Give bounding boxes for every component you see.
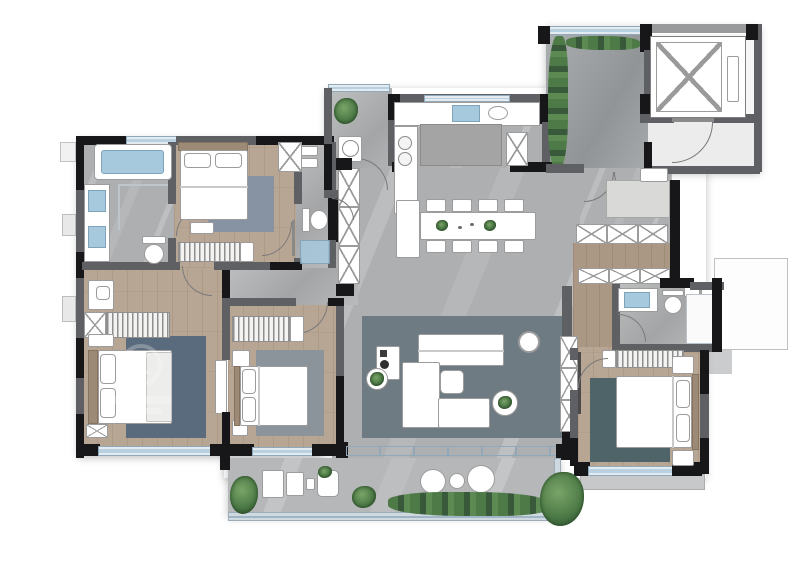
- shower-screen: [120, 184, 168, 186]
- round-chair: [420, 469, 446, 494]
- duvet-fold: [180, 186, 248, 188]
- wall-segment: [336, 284, 354, 296]
- wall-segment: [328, 298, 344, 306]
- door-leaf: [672, 118, 714, 122]
- door-panel: [215, 360, 227, 414]
- round-chair: [467, 465, 495, 493]
- nightstand: [86, 424, 108, 438]
- kitchen-island: [420, 124, 502, 166]
- wall-segment: [538, 26, 550, 44]
- pillow: [676, 414, 690, 442]
- wall-segment: [222, 444, 254, 456]
- lounge-chair: [262, 470, 284, 498]
- wall-segment: [570, 348, 578, 360]
- ac-ledge: [62, 214, 76, 236]
- watermark-glyph: [132, 354, 150, 374]
- pillow: [676, 380, 690, 408]
- wall-segment: [700, 394, 709, 440]
- round-table: [449, 473, 465, 489]
- desk-chair: [96, 286, 110, 300]
- window: [328, 84, 390, 92]
- dining-chair: [504, 240, 524, 253]
- sofa-cushion-line: [418, 350, 504, 352]
- wall-segment: [76, 338, 84, 380]
- elevator-counterweight: [727, 56, 739, 102]
- toilet-bowl: [664, 296, 682, 314]
- sofa-section: [402, 362, 440, 428]
- toilet-tank: [302, 208, 310, 232]
- wardrobe-cabinet: [240, 242, 254, 262]
- wardrobe-hanging: [232, 316, 290, 342]
- window: [546, 26, 648, 35]
- dining-chair: [478, 240, 498, 253]
- toilet-bowl: [144, 244, 164, 264]
- wall-segment: [214, 262, 270, 270]
- watermark-text-bar: [110, 396, 170, 404]
- wall-segment: [222, 306, 230, 360]
- dining-chair: [452, 199, 472, 212]
- pillow: [184, 153, 211, 168]
- wall-segment: [700, 350, 709, 396]
- wall-segment: [76, 278, 84, 340]
- wardrobe-hanging: [178, 242, 240, 262]
- dining-chair: [504, 199, 524, 212]
- sink-basin: [88, 190, 106, 212]
- decor-object: [380, 350, 387, 357]
- wall-segment: [336, 306, 344, 378]
- wall-segment: [546, 164, 584, 173]
- floor-plan: [0, 0, 800, 586]
- wall-segment: [670, 180, 680, 284]
- headboard: [88, 350, 98, 424]
- storage-cabinet: [638, 224, 668, 244]
- pillow: [242, 397, 256, 422]
- exterior-ledge: [60, 142, 76, 162]
- wall-segment: [220, 456, 230, 470]
- wall-segment: [336, 158, 352, 170]
- duvet-fold: [258, 366, 260, 426]
- bench: [190, 222, 214, 234]
- nightstand: [672, 356, 694, 374]
- decor-object: [380, 360, 389, 369]
- hall-cabinet: [606, 180, 670, 218]
- bathtub-water: [101, 150, 164, 174]
- side-table: [306, 478, 315, 490]
- coffee-table: [440, 370, 464, 394]
- watermark: [108, 344, 172, 418]
- storage-cabinet: [578, 268, 609, 284]
- pillow: [215, 153, 242, 168]
- wall-segment: [324, 88, 332, 146]
- wardrobe-hanging: [106, 312, 170, 338]
- headboard: [692, 374, 699, 450]
- wall-segment: [712, 278, 722, 352]
- shower-screen: [118, 184, 120, 230]
- dining-chair: [478, 199, 498, 212]
- nightstand: [232, 350, 250, 367]
- wall-segment: [570, 390, 578, 440]
- elevator-cross: [656, 42, 722, 112]
- lounge-ottoman: [286, 472, 304, 496]
- kitchen-sink: [452, 105, 480, 122]
- shower-room: [686, 294, 714, 344]
- storage-cabinet: [607, 224, 638, 244]
- lobby-wall: [650, 24, 760, 33]
- pillow: [242, 369, 256, 394]
- planter-row: [388, 492, 548, 516]
- washer-drum: [342, 140, 359, 157]
- window: [588, 466, 674, 476]
- toilet-tank: [142, 236, 166, 244]
- fridge-cabinet: [506, 132, 528, 166]
- sliding-glass-door: [346, 446, 558, 456]
- dining-chair: [426, 199, 446, 212]
- basin: [488, 106, 508, 120]
- wall-segment: [76, 378, 84, 416]
- nightstand: [672, 450, 694, 466]
- wall-segment: [76, 444, 100, 456]
- tall-cabinet: [338, 246, 360, 284]
- wall-segment: [324, 144, 332, 194]
- cooktop-burner: [398, 152, 412, 166]
- large-plant: [540, 472, 584, 526]
- wall-segment: [746, 24, 758, 40]
- storage-cabinet: [609, 268, 640, 284]
- wall-segment: [76, 190, 84, 254]
- planting-bed: [566, 36, 640, 50]
- sofa-section: [438, 398, 490, 428]
- wall-segment: [270, 262, 302, 270]
- storage-cabinet: [576, 224, 607, 244]
- dining-chair: [426, 240, 446, 253]
- shower: [300, 240, 330, 264]
- dining-buffet: [396, 200, 420, 258]
- side-table: [518, 331, 540, 353]
- wardrobe-cabinet: [290, 316, 304, 342]
- toilet-bowl: [310, 210, 328, 230]
- window: [424, 95, 510, 102]
- sink-basin: [624, 292, 650, 308]
- table-decor: [470, 223, 474, 226]
- watermark-text-bar: [118, 408, 162, 414]
- wall-segment: [222, 298, 296, 306]
- dining-chair: [452, 240, 472, 253]
- bedroom-three-ledge: [580, 474, 705, 490]
- cooktop-burner: [398, 136, 412, 150]
- sink-basin: [88, 226, 106, 248]
- ac-ledge: [62, 296, 76, 322]
- wall-segment: [82, 262, 180, 270]
- wall-segment: [76, 142, 84, 190]
- wall-segment: [754, 24, 762, 172]
- door-leaf: [292, 220, 295, 256]
- duvet-fold: [672, 376, 674, 448]
- planting-bed: [548, 36, 568, 168]
- hall-cabinet: [640, 168, 668, 182]
- table-decor: [458, 226, 462, 229]
- wall-segment: [660, 278, 694, 288]
- window: [98, 446, 212, 456]
- equipment-platform: [714, 258, 788, 350]
- wall-segment: [562, 286, 572, 338]
- closet-cabinet: [278, 142, 302, 172]
- window: [252, 447, 314, 456]
